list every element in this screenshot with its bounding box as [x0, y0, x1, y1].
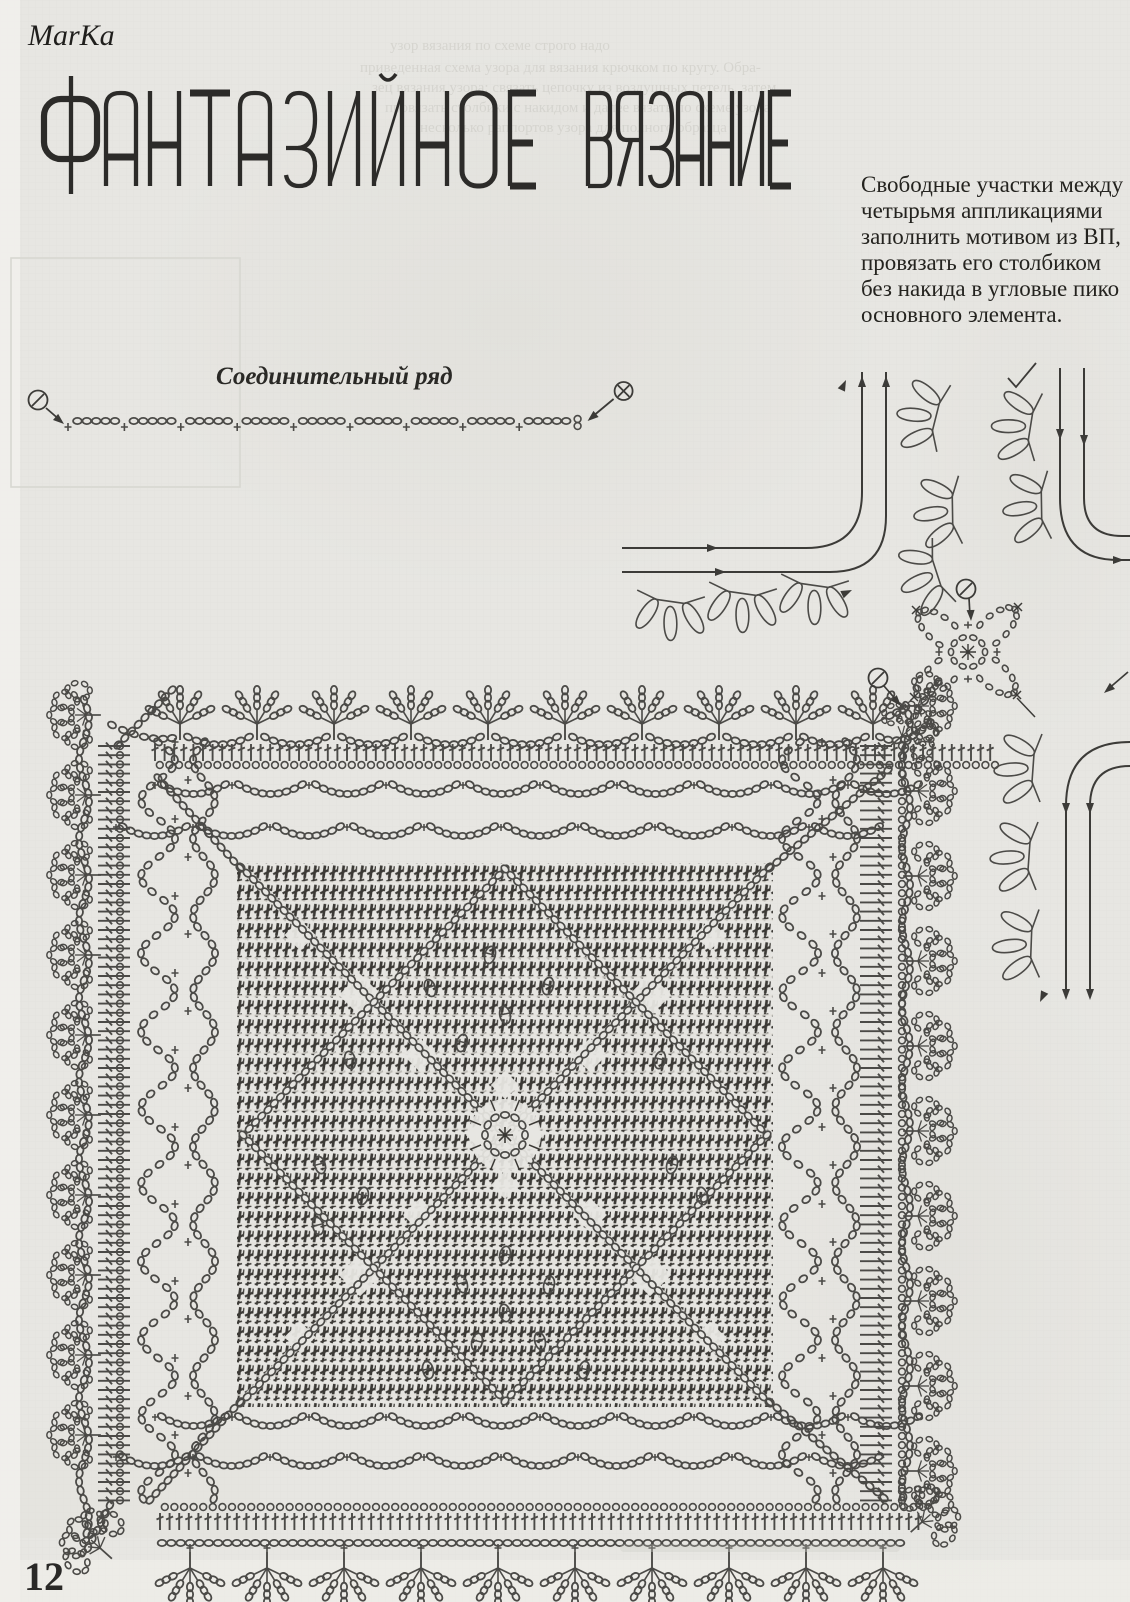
svg-text:несколько раппортов узора для: несколько раппортов узора для полного об… [420, 120, 727, 136]
svg-text:Соединительный ряд: Соединительный ряд [216, 363, 453, 390]
svg-text:без накида в угловые пико: без накида в угловые пико [861, 276, 1119, 301]
svg-text:заполнить мотивом из ВП,: заполнить мотивом из ВП, [861, 224, 1121, 249]
svg-text:четырьмя аппликациями: четырьмя аппликациями [861, 198, 1103, 223]
svg-text:провязать его столбиком: провязать его столбиком [861, 250, 1101, 275]
svg-text:провязать столбики с накидом и: провязать столбики с накидом и далее вяз… [385, 100, 771, 116]
svg-text:Свободные участки между: Свободные участки между [861, 172, 1124, 197]
svg-text:12: 12 [24, 1554, 64, 1599]
svg-text:приведенная схема узора для вя: приведенная схема узора для вязания крюч… [360, 60, 761, 76]
svg-text:зец вязания узора: связать цеп: зец вязания узора: связать цепочку из во… [372, 80, 777, 96]
svg-text:основного элемента.: основного элемента. [861, 302, 1062, 327]
svg-text:MarKa: MarKa [27, 19, 115, 52]
svg-text:узор вязания по схеме строго н: узор вязания по схеме строго надо [390, 38, 610, 54]
